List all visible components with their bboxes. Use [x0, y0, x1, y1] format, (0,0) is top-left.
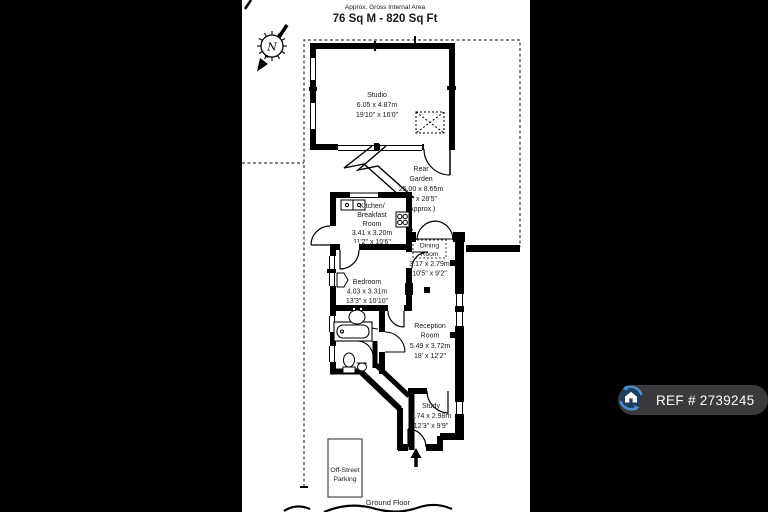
parking-area: Off-Street Parking	[328, 439, 362, 497]
studio-metric: 6.05 x 4.87m	[357, 102, 398, 109]
dining-line1: Dining	[420, 243, 439, 250]
kitchen-metric: 3.41 x 3.20m	[352, 230, 393, 237]
compass-n-label: N	[266, 41, 277, 54]
dining-metric: 3.17 x 2.79m	[409, 261, 450, 268]
reception-line2: Room	[421, 333, 440, 340]
ref-badge: REF # 2739245	[618, 385, 768, 415]
studio-name: Studio	[367, 92, 387, 99]
kitchen-line2: Breakfast	[357, 212, 387, 219]
dining-line2: Room	[420, 251, 438, 258]
bedroom-metric: 4.03 x 3.31m	[347, 289, 388, 296]
bathtub-icon	[334, 322, 372, 341]
reception-imperial: 18' x 12'2"	[414, 353, 447, 360]
garden-wall-segment	[466, 245, 520, 252]
kitchen-line1: Kitchen/	[359, 203, 384, 210]
agency-logo-icon	[623, 387, 649, 413]
reception-line1: Reception	[414, 323, 446, 330]
ref-number: REF # 2739245	[656, 393, 754, 408]
floor-label: Ground Floor	[366, 498, 411, 507]
garden-line2: Garden	[409, 176, 432, 183]
parking-line1: Off-Street	[330, 467, 359, 474]
garden-metric: 25.00 x 8.65m	[399, 186, 444, 193]
floorplan-drawing: Approx. Gross Internal Area 76 Sq M - 82…	[0, 0, 768, 512]
header: Approx. Gross Internal Area 76 Sq M - 82…	[333, 4, 438, 25]
parking-line2: Parking	[333, 476, 356, 483]
floorplan-page: Approx. Gross Internal Area 76 Sq M - 82…	[0, 0, 768, 512]
dining-imperial: 10'5" x 9'2"	[412, 271, 447, 278]
gross-area-value: 76 Sq M - 820 Sq Ft	[333, 13, 438, 25]
study-metric: 3.74 x 2.98m	[411, 413, 452, 420]
study-imperial: 12'3" x 9'9"	[414, 423, 449, 430]
toilet-icon	[343, 353, 355, 373]
basin-icon	[349, 308, 365, 325]
bedroom-name: Bedroom	[353, 279, 382, 286]
garden-line1: Rear	[413, 166, 429, 173]
study-name: Study	[422, 403, 440, 410]
studio-imperial: 19'10" x 16'0"	[356, 112, 399, 119]
small-basin-icon	[357, 363, 367, 371]
bedroom-imperial: 13'3" x 10'10"	[346, 298, 389, 305]
reception-metric: 5.49 x 3.72m	[410, 343, 451, 350]
hob-icon	[396, 212, 409, 227]
approx-area-label: Approx. Gross Internal Area	[345, 4, 426, 11]
kitchen-line3: Room	[363, 221, 382, 228]
